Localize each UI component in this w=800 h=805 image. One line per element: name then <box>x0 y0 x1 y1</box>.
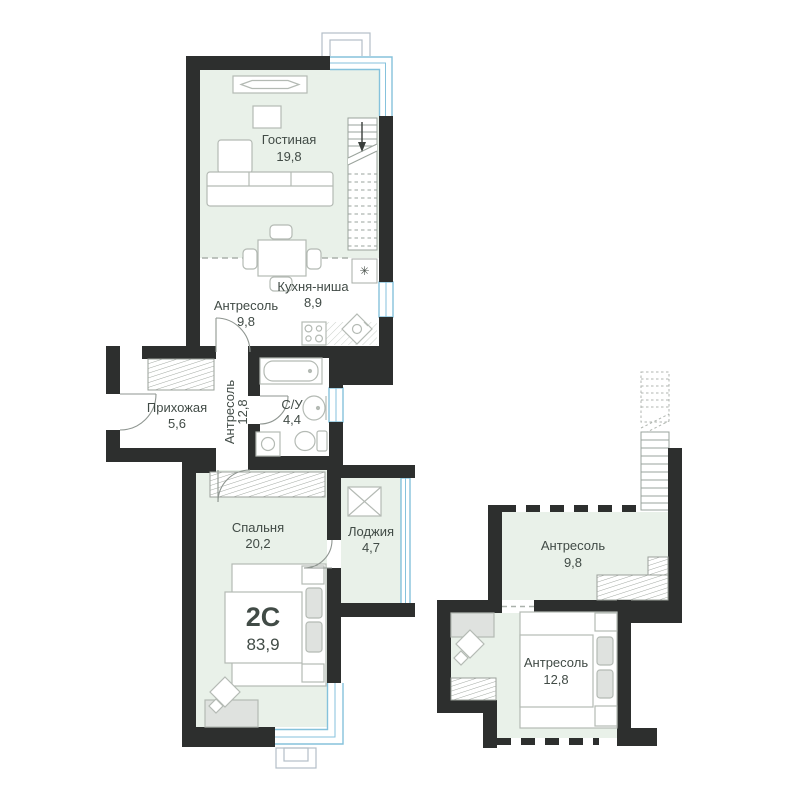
label-kitchen-area: 8,9 <box>304 295 322 310</box>
vent-shaft: ✳ <box>352 259 377 283</box>
loggia-window <box>401 478 410 606</box>
bathtub <box>260 358 322 384</box>
mezzanine-plan-1: Антресоль 9,8 <box>488 372 682 623</box>
label-bedroom-name: Спальня <box>232 520 284 535</box>
bath-sink <box>303 396 326 420</box>
label-bedroom-area: 20,2 <box>245 536 270 551</box>
stairs-mezz <box>641 372 669 510</box>
label-living-name: Гостиная <box>262 132 317 147</box>
label-mezzplan1-area: 9,8 <box>564 555 582 570</box>
bathroom-window <box>329 388 343 422</box>
stairs-main <box>348 118 377 250</box>
tv-console <box>233 76 307 93</box>
label-loggia-area: 4,7 <box>362 540 380 555</box>
plan-total-area: 83,9 <box>246 635 279 654</box>
kitchen-equipment <box>302 314 377 345</box>
hall-wardrobe <box>148 359 214 390</box>
sofa <box>207 172 333 206</box>
washing-machine <box>256 432 280 456</box>
label-hall-area: 5,6 <box>168 416 186 431</box>
loggia-cabinet <box>348 487 381 516</box>
plan-type-label: 2С <box>246 602 281 632</box>
coffee-table <box>253 106 281 128</box>
label-bath-area: 4,4 <box>283 412 301 427</box>
stove <box>302 322 326 345</box>
label-loggia-name: Лоджия <box>348 524 394 539</box>
kitchen-window <box>379 282 393 317</box>
label-mezzplan2-area: 12,8 <box>543 672 568 687</box>
label-mezzplan2-name: Антресоль <box>524 655 588 670</box>
label-kitchen-name: Кухня-ниша <box>277 279 349 294</box>
label-bath-name: С/У <box>281 397 303 412</box>
floor-plan-canvas: ✳ <box>0 0 800 800</box>
floor-plan: ✳ <box>0 0 800 800</box>
armchair <box>218 140 252 173</box>
label-mezz1-area: 9,8 <box>237 314 255 329</box>
label-mezz1-name: Антресоль <box>214 298 278 313</box>
plan-badge: 2С 83,9 <box>225 592 302 663</box>
mezz2-wardrobe <box>451 678 496 700</box>
mezz2-label-box: Антресоль 12,8 <box>520 635 593 707</box>
label-mezz2-area: 12,8 <box>235 399 250 424</box>
balcony-top <box>322 33 370 57</box>
main-plan: ✳ <box>106 33 415 768</box>
label-mezzplan1-name: Антресоль <box>541 538 605 553</box>
bedroom-wardrobe <box>210 472 325 497</box>
dining-table <box>258 240 306 276</box>
label-hall-name: Прихожая <box>147 400 207 415</box>
mezzanine-plan-2: Антресоль 12,8 <box>437 600 657 748</box>
vent-icon: ✳ <box>359 264 369 278</box>
toilet <box>295 431 327 451</box>
label-living-area: 19,8 <box>276 149 301 164</box>
balcony-bottom <box>276 748 316 768</box>
mezzanine-plans: Антресоль 9,8 <box>437 372 682 748</box>
